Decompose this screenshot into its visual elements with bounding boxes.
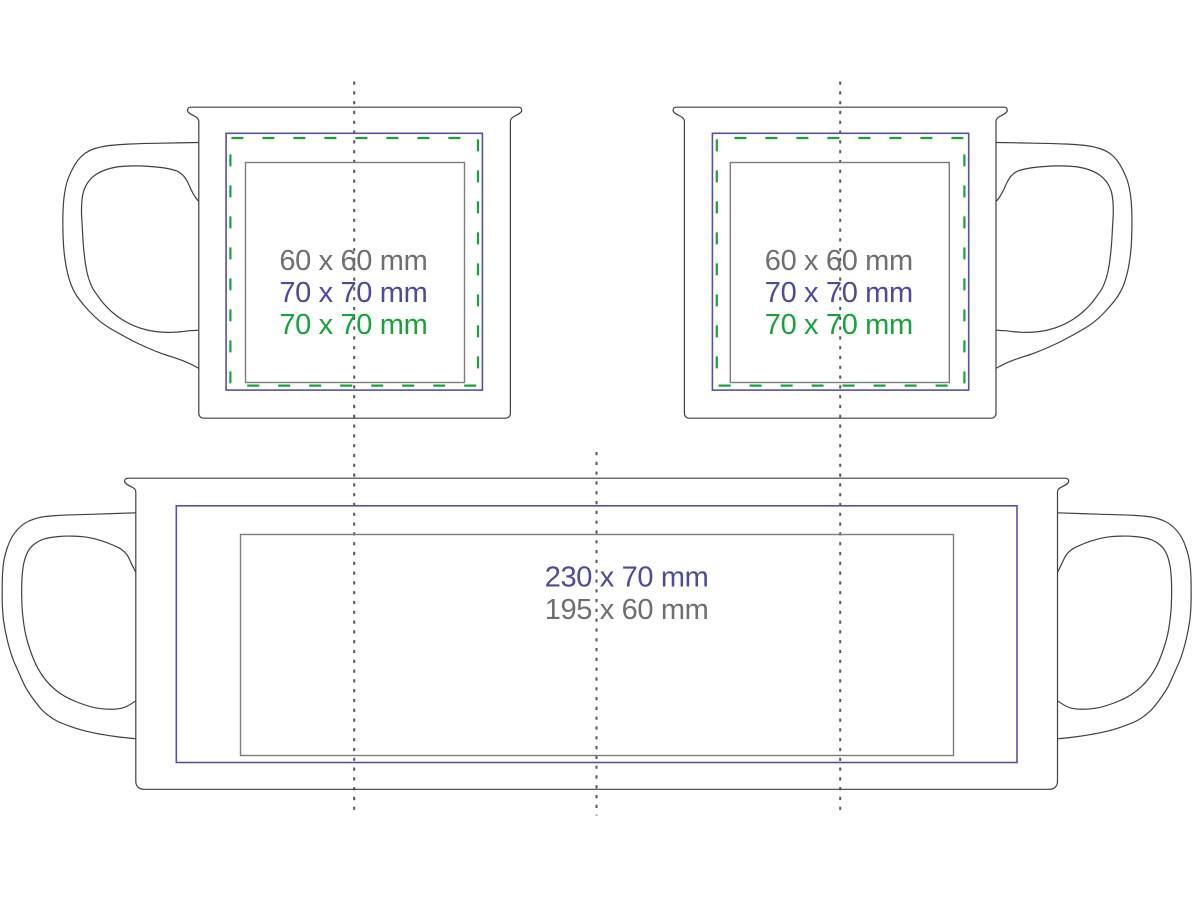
svg-text:70 x 70 mm: 70 x 70 mm [279, 309, 427, 341]
svg-text:230 x 70 mm: 230 x 70 mm [545, 562, 709, 594]
svg-text:195 x 60 mm: 195 x 60 mm [545, 594, 709, 626]
svg-text:60 x 60 mm: 60 x 60 mm [279, 245, 427, 277]
svg-text:70 x 70 mm: 70 x 70 mm [765, 277, 913, 309]
svg-text:70 x 70 mm: 70 x 70 mm [765, 309, 913, 341]
svg-text:70 x 70 mm: 70 x 70 mm [279, 277, 427, 309]
svg-text:60 x 60 mm: 60 x 60 mm [765, 245, 913, 277]
